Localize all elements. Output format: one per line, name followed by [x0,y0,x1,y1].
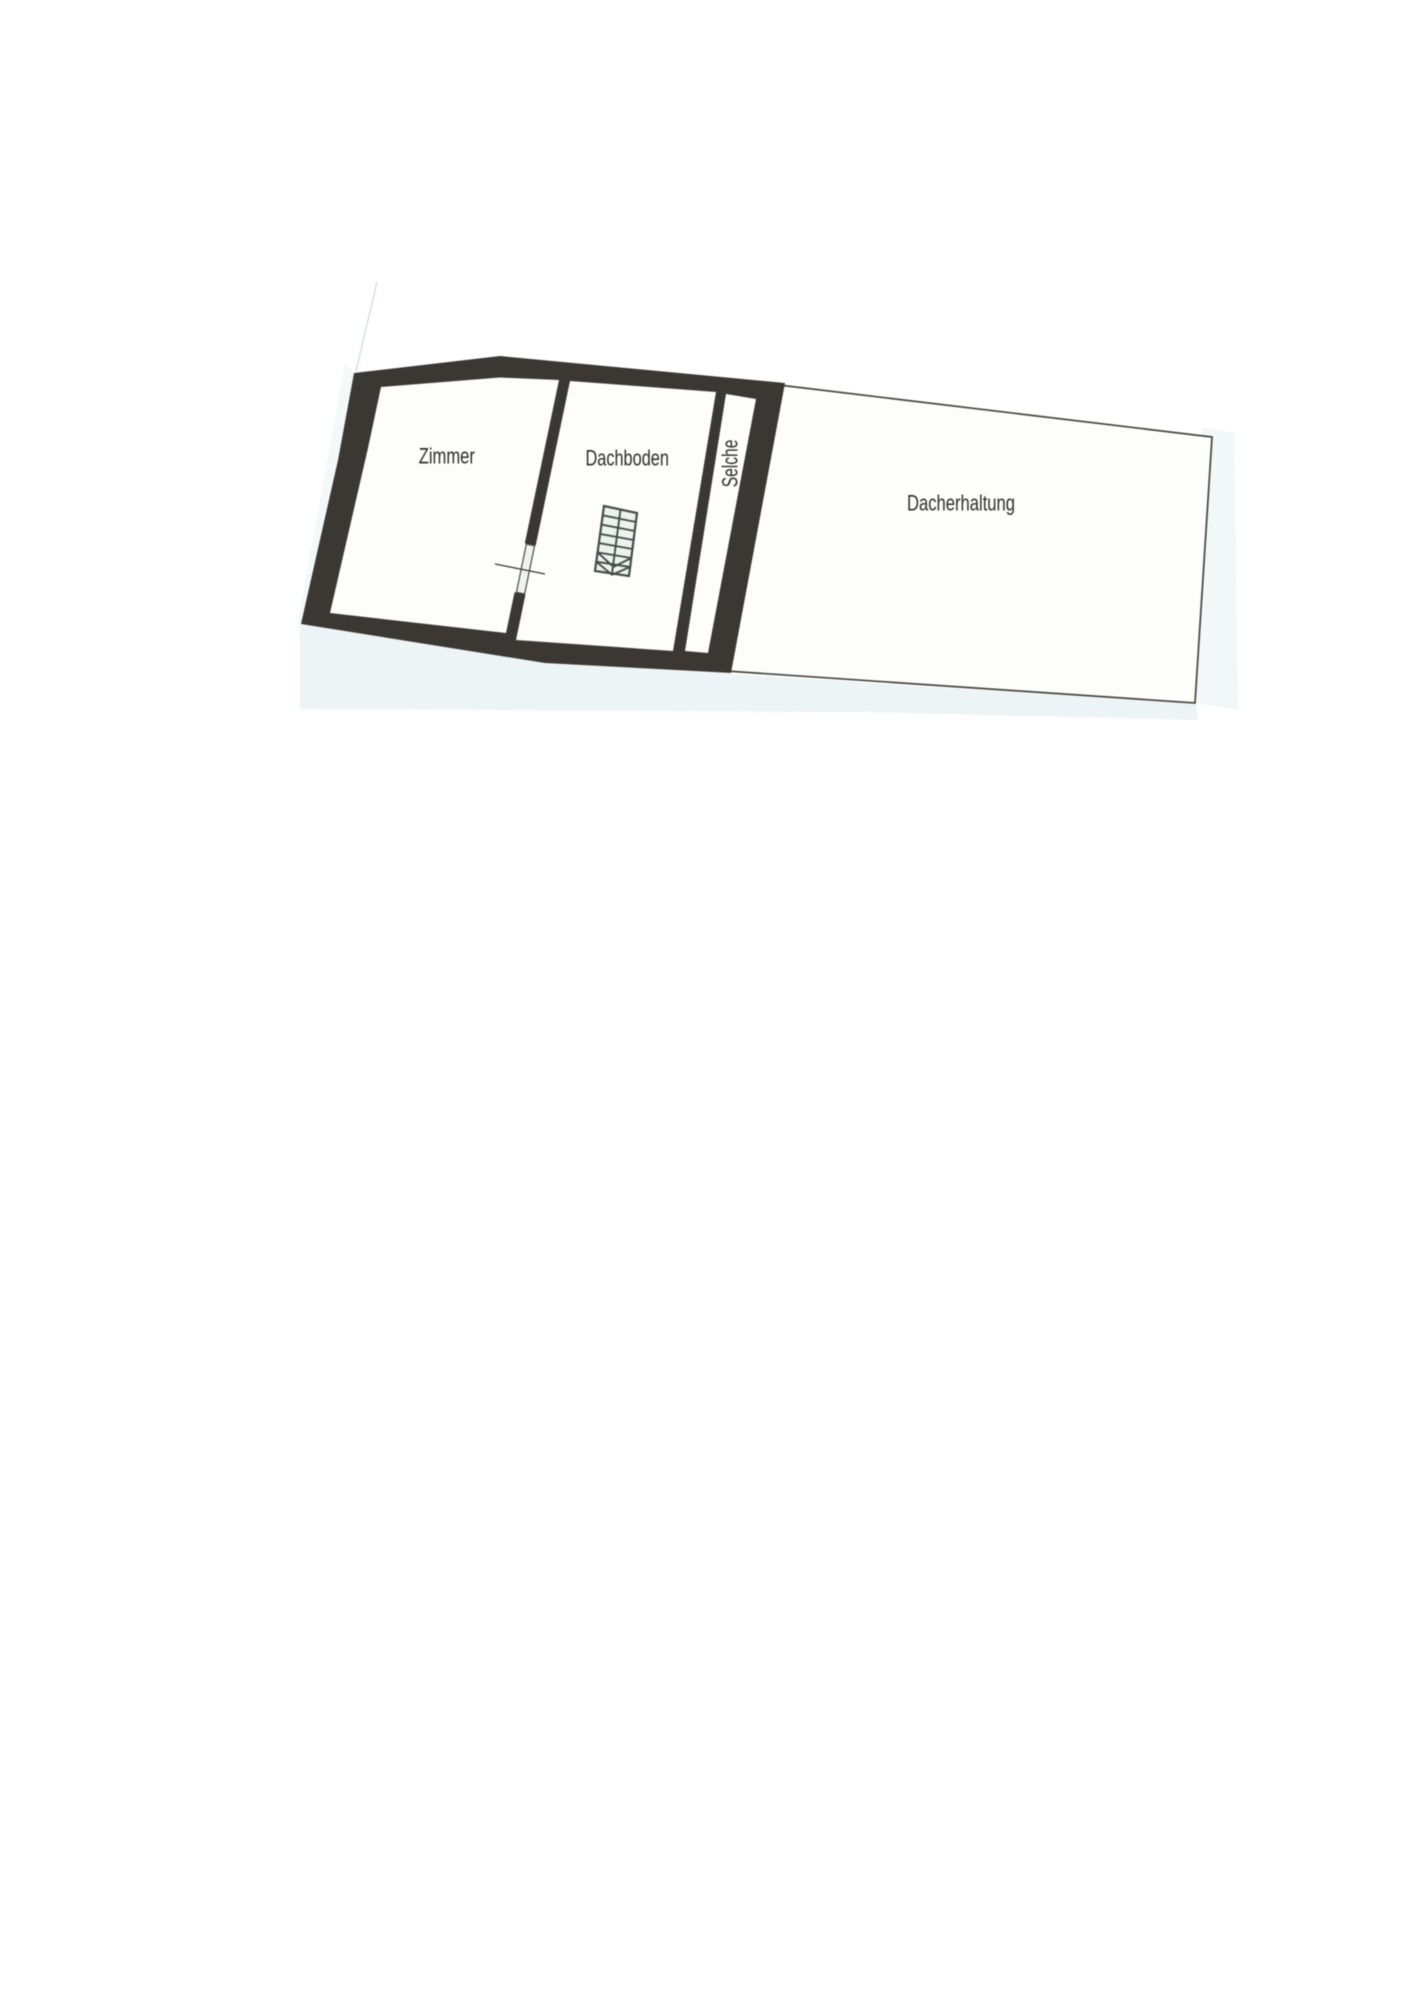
svg-text:Zimmer: Zimmer [419,444,476,469]
svg-text:Dacherhaltung: Dacherhaltung [907,492,1015,517]
svg-text:Dachboden: Dachboden [586,446,669,471]
svg-text:Selche: Selche [719,440,743,488]
